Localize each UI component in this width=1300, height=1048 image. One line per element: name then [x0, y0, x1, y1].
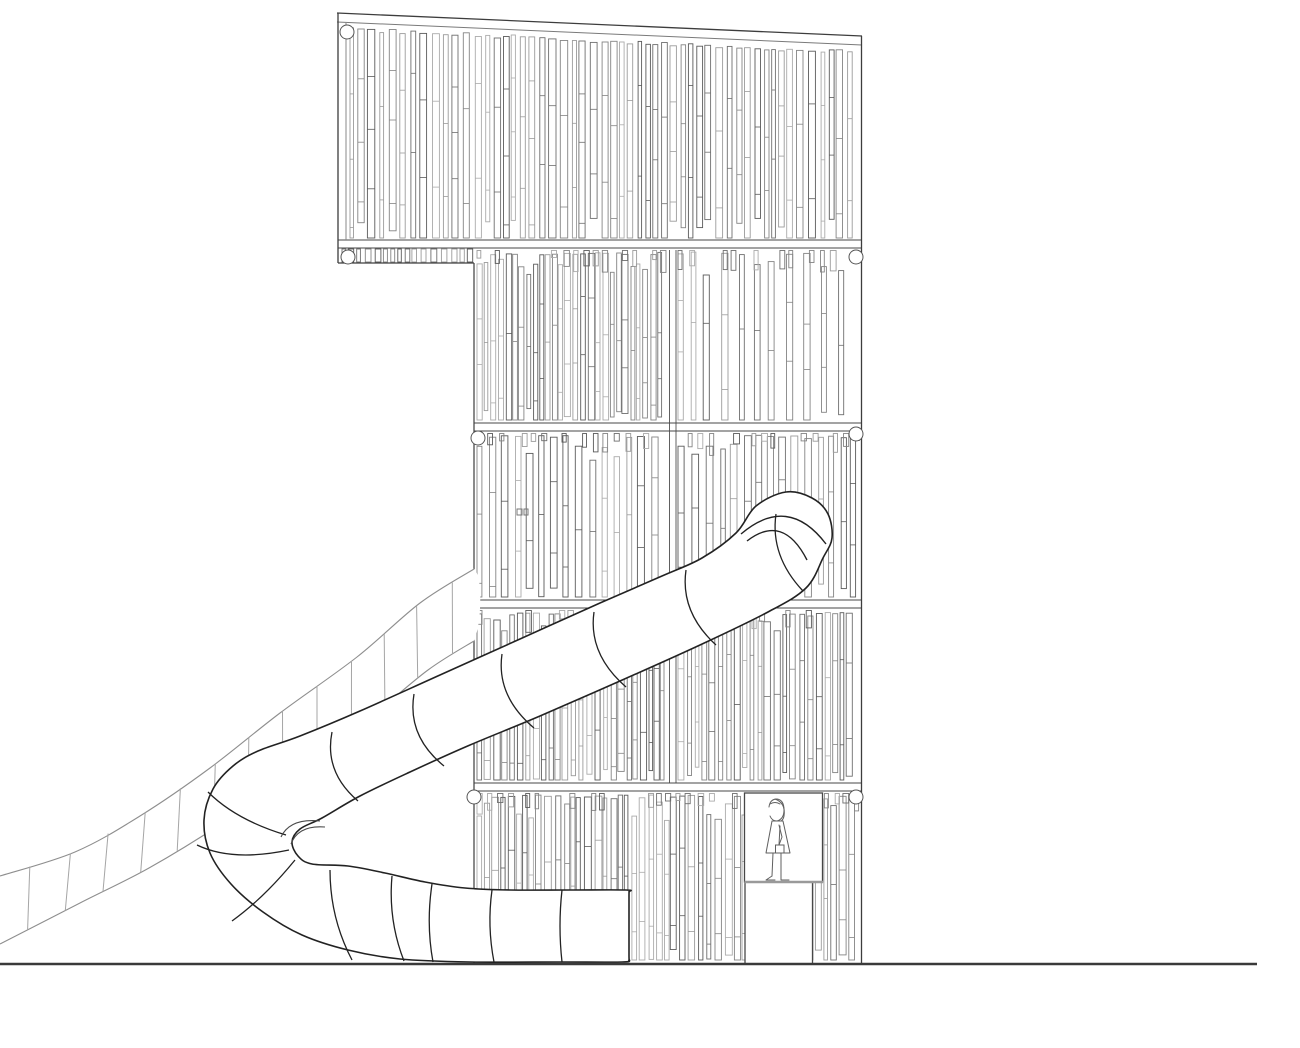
facade-seam [670, 250, 677, 783]
elevation-drawing [0, 0, 1300, 1048]
elevation-canvas [0, 0, 1300, 1048]
